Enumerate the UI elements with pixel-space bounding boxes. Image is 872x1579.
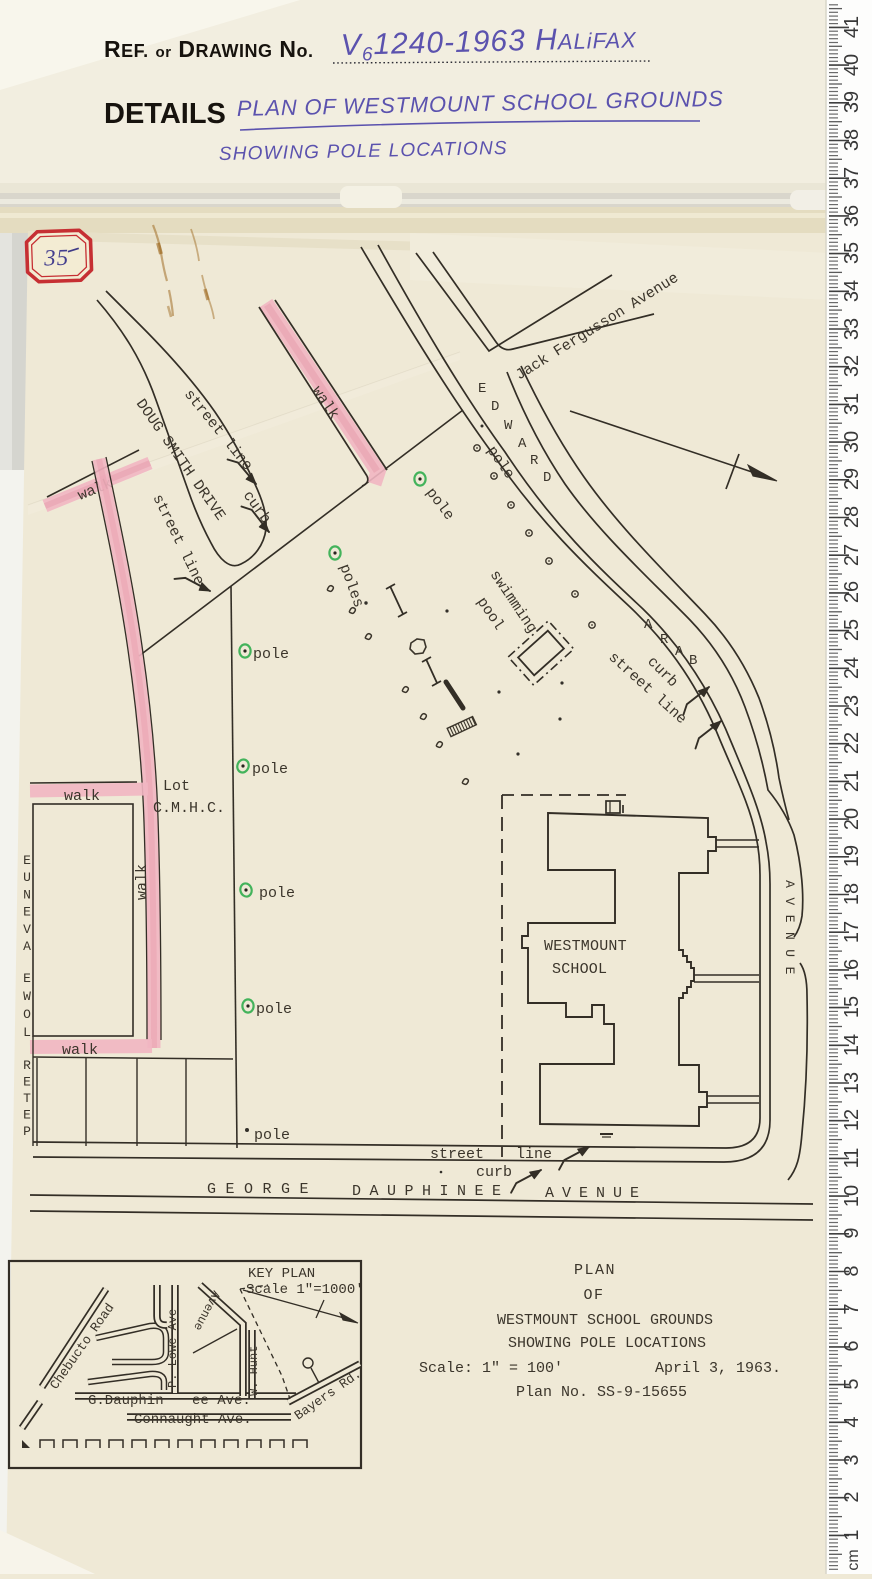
svg-text:W. Hunt: W. Hunt — [247, 1346, 261, 1396]
svg-text:pole: pole — [253, 646, 289, 663]
svg-text:5: 5 — [841, 1378, 863, 1389]
svg-text:N: N — [782, 932, 797, 940]
svg-text:8: 8 — [841, 1265, 863, 1276]
svg-text:14: 14 — [841, 1034, 863, 1056]
svg-text:WESTMOUNT SCHOOL GROUNDS: WESTMOUNT SCHOOL GROUNDS — [497, 1312, 713, 1329]
svg-text:U: U — [782, 949, 797, 957]
svg-text:E: E — [23, 853, 31, 868]
svg-text:13: 13 — [841, 1072, 863, 1094]
svg-text:35: 35 — [43, 245, 70, 271]
svg-text:O: O — [23, 1007, 31, 1022]
svg-text:B: B — [689, 653, 697, 669]
svg-text:30: 30 — [841, 431, 863, 453]
svg-text:L: L — [23, 1025, 31, 1040]
svg-text:19: 19 — [841, 845, 863, 867]
svg-text:OF: OF — [583, 1287, 604, 1304]
svg-text:D: D — [543, 470, 551, 486]
svg-text:2: 2 — [841, 1491, 863, 1502]
svg-text:10: 10 — [841, 1185, 863, 1207]
svg-text:A: A — [644, 617, 653, 633]
svg-text:R: R — [23, 1058, 31, 1073]
svg-text:22: 22 — [841, 732, 863, 754]
svg-text:R: R — [530, 453, 539, 469]
svg-text:40: 40 — [841, 54, 863, 76]
svg-text:Lot: Lot — [163, 778, 190, 795]
svg-text:E: E — [478, 381, 486, 397]
svg-text:WESTMOUNT: WESTMOUNT — [544, 938, 627, 955]
svg-text:4: 4 — [841, 1416, 863, 1427]
svg-text:Plan No. SS-9-15655: Plan No. SS-9-15655 — [516, 1384, 687, 1401]
svg-text:16: 16 — [841, 959, 863, 981]
svg-text:1: 1 — [841, 1529, 863, 1540]
svg-text:DETAILS: DETAILS — [104, 98, 226, 130]
svg-text:line: line — [516, 1146, 552, 1163]
svg-text:pole: pole — [254, 1127, 290, 1144]
svg-text:6: 6 — [841, 1340, 863, 1351]
svg-text:35: 35 — [841, 242, 863, 264]
svg-text:PLAN: PLAN — [574, 1262, 616, 1279]
svg-text:W: W — [504, 418, 513, 434]
svg-text:A: A — [675, 644, 684, 660]
svg-text:GEORGE: GEORGE — [207, 1181, 318, 1198]
svg-text:April 3, 1963.: April 3, 1963. — [655, 1360, 781, 1377]
svg-text:23: 23 — [841, 695, 863, 717]
svg-text:15: 15 — [841, 996, 863, 1018]
svg-text:26: 26 — [841, 581, 863, 603]
svg-text:E: E — [23, 971, 31, 986]
svg-text:18: 18 — [841, 883, 863, 905]
svg-text:pole: pole — [252, 761, 288, 778]
svg-text:SCHOOL: SCHOOL — [552, 961, 607, 978]
svg-text:KEY PLAN: KEY PLAN — [248, 1266, 315, 1282]
svg-text:39: 39 — [841, 91, 863, 113]
svg-text:31: 31 — [841, 393, 863, 415]
svg-text:12: 12 — [841, 1109, 863, 1131]
svg-text:T: T — [23, 1091, 31, 1106]
svg-text:DAUPHINEE: DAUPHINEE — [352, 1183, 510, 1200]
svg-text:27: 27 — [841, 544, 863, 566]
svg-text:C.M.H.C.: C.M.H.C. — [153, 800, 225, 817]
svg-text:A: A — [782, 880, 797, 888]
svg-text:3: 3 — [841, 1454, 863, 1465]
svg-text:ee Ave.: ee Ave. — [192, 1393, 251, 1409]
svg-text:U: U — [23, 870, 31, 885]
svg-text:G.Dauphin: G.Dauphin — [88, 1393, 164, 1409]
svg-text:V: V — [782, 897, 797, 905]
svg-text:pole: pole — [256, 1001, 292, 1018]
svg-text:walk: walk — [134, 864, 151, 900]
svg-text:Connaught Ave.: Connaught Ave. — [134, 1412, 252, 1428]
svg-text:37: 37 — [841, 167, 863, 189]
svg-text:pole: pole — [259, 885, 295, 902]
svg-text:38: 38 — [841, 129, 863, 151]
svg-text:7: 7 — [841, 1303, 863, 1314]
svg-text:E: E — [23, 1108, 31, 1123]
svg-text:E: E — [23, 905, 31, 920]
svg-text:11: 11 — [841, 1148, 863, 1169]
svg-text:9: 9 — [841, 1227, 863, 1238]
svg-text:32: 32 — [841, 355, 863, 377]
svg-text:W: W — [23, 989, 31, 1004]
svg-text:28: 28 — [841, 506, 863, 528]
svg-text:P. Lowe Ave: P. Lowe Ave — [166, 1309, 180, 1388]
svg-text:D: D — [491, 399, 499, 415]
svg-text:E: E — [23, 1075, 31, 1090]
svg-text:36: 36 — [841, 205, 863, 227]
svg-text:curb: curb — [476, 1164, 512, 1181]
svg-text:N: N — [23, 887, 31, 902]
svg-text:33: 33 — [841, 318, 863, 340]
svg-text:E: E — [782, 915, 797, 923]
svg-text:20: 20 — [841, 808, 863, 830]
svg-text:Scale: 1" = 100': Scale: 1" = 100' — [419, 1360, 563, 1377]
svg-text:street: street — [430, 1146, 484, 1163]
svg-text:21: 21 — [841, 770, 863, 792]
svg-text:41: 41 — [841, 16, 863, 38]
svg-text:walk: walk — [64, 788, 100, 805]
svg-text:34: 34 — [841, 280, 863, 302]
svg-text:17: 17 — [841, 921, 863, 943]
svg-text:29: 29 — [841, 468, 863, 490]
svg-text:V: V — [23, 922, 31, 937]
svg-text:SHOWING POLE LOCATIONS: SHOWING POLE LOCATIONS — [508, 1335, 706, 1352]
svg-text:AVENUE: AVENUE — [545, 1185, 647, 1202]
svg-text:A: A — [23, 939, 31, 954]
svg-text:E: E — [782, 967, 797, 975]
svg-text:A: A — [518, 436, 527, 452]
svg-text:walk: walk — [62, 1042, 98, 1059]
svg-text:R: R — [660, 632, 669, 648]
svg-text:cm: cm — [845, 1549, 862, 1570]
svg-text:P: P — [23, 1124, 31, 1139]
svg-text:24: 24 — [841, 657, 863, 679]
svg-text:25: 25 — [841, 619, 863, 641]
